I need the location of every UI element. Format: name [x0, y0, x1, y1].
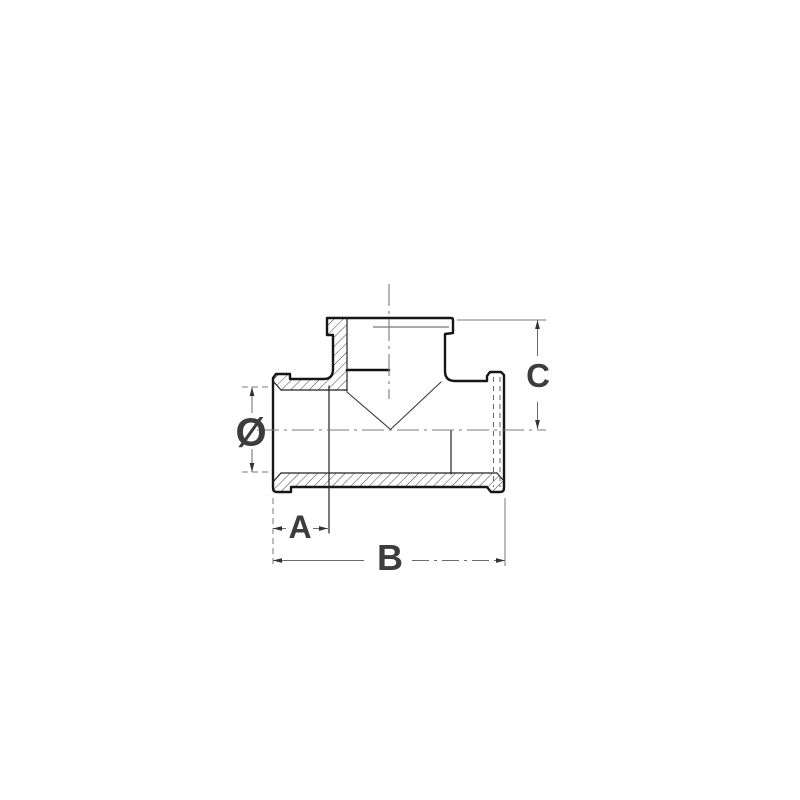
dimension-diameter: Ø — [235, 387, 271, 472]
c-arrow-down — [535, 420, 540, 429]
diameter-arrow-down — [250, 463, 255, 472]
fitting-outline — [273, 318, 504, 492]
a-arrow-right — [319, 526, 328, 531]
bore-intersection-left — [347, 392, 390, 429]
drawing-canvas: Ø C A B — [0, 0, 800, 800]
dimension-label-diameter: Ø — [235, 411, 266, 455]
dimension-a: A — [273, 498, 328, 566]
bore-intersection-right — [391, 382, 441, 429]
dimension-label-c: C — [526, 357, 550, 394]
fitting-body — [273, 318, 504, 533]
c-arrow-up — [535, 320, 540, 329]
dimension-label-a: A — [288, 509, 311, 545]
centerlines — [257, 284, 546, 430]
diameter-arrow-up — [250, 387, 255, 396]
tee-fitting-technical-drawing: Ø C A B — [0, 0, 800, 800]
section-hatch-bottom — [273, 473, 504, 492]
a-arrow-left — [273, 526, 282, 531]
dimension-label-b: B — [377, 537, 403, 578]
b-arrow-left — [273, 558, 282, 563]
b-arrow-right — [496, 558, 505, 563]
